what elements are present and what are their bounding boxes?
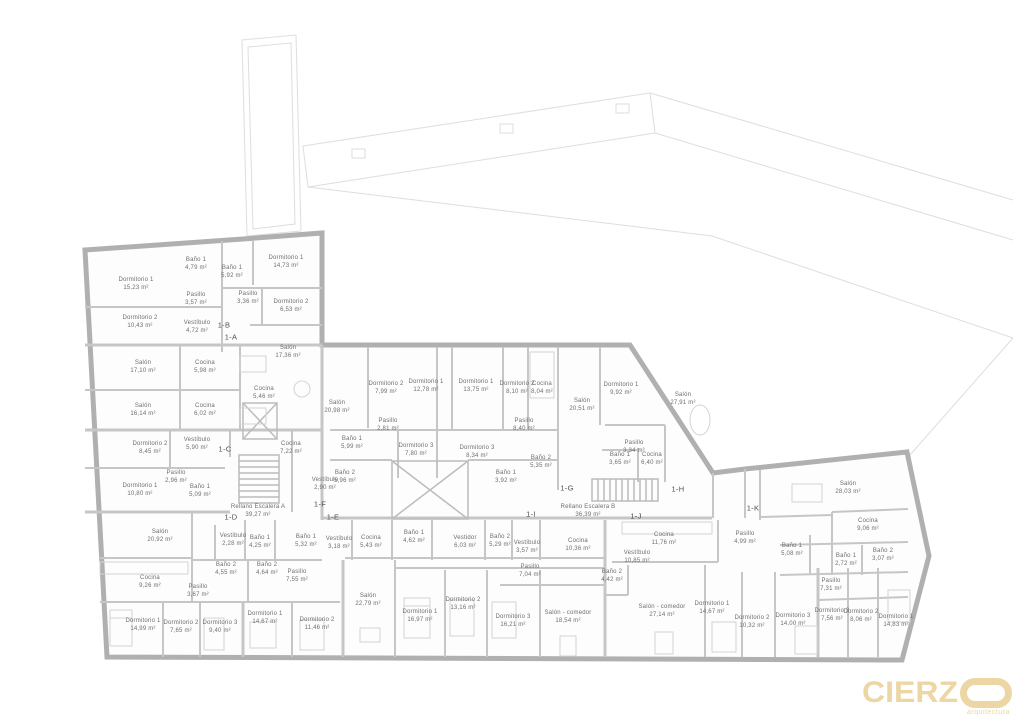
- logo-cierzo: CIERZ arquitectura: [862, 678, 1012, 716]
- room-label: Dormitorio 210,43 m²: [122, 314, 157, 330]
- room-label: Dormitorio 37,80 m²: [398, 442, 433, 458]
- room-label: Dormitorio 27,99 m²: [368, 380, 403, 396]
- room-label: Salón27,91 m²: [670, 391, 695, 407]
- room-label: Baño 13,92 m²: [495, 469, 517, 485]
- room-label: Pasillo3,57 m²: [185, 291, 207, 307]
- room-label: Baño 24,42 m²: [601, 568, 623, 584]
- logo-o-mark-icon: [960, 678, 1012, 708]
- room-label: Dormitorio 26,53 m²: [273, 298, 308, 314]
- room-label: Baño 14,25 m²: [249, 534, 271, 550]
- room-label: Dormitorio 114,73 m²: [268, 254, 303, 270]
- room-label: Dormitorio 28,45 m²: [132, 440, 167, 456]
- room-label: Salón20,51 m²: [569, 397, 594, 413]
- room-label: Pasillo3,67 m²: [187, 583, 209, 599]
- floor-plan-canvas: Baño 14,79 m²Dormitorio 115,23 m²Dormito…: [0, 0, 1024, 724]
- room-label: Vestíbulo2,28 m²: [220, 532, 247, 548]
- room-label: Cocina5,46 m²: [253, 385, 275, 401]
- room-label: Baño 14,62 m²: [403, 529, 425, 545]
- room-label: Dormitorio 210,32 m²: [734, 614, 769, 630]
- room-label: Dormitorio 27,65 m²: [163, 619, 198, 635]
- unit-code-label: 1-E: [327, 513, 340, 522]
- unit-code-label: 1-G: [560, 484, 573, 493]
- room-label: Cocina7,22 m²: [280, 440, 302, 456]
- unit-code-label: 1-B: [218, 321, 231, 330]
- room-label: Vestíbulo4,72 m²: [184, 319, 211, 335]
- room-label: Dormitorio 314,00 m²: [775, 612, 810, 628]
- room-label: Salón17,10 m²: [130, 359, 155, 375]
- room-label: Baño 24,55 m²: [215, 561, 237, 577]
- room-labels-layer: Baño 14,79 m²Dormitorio 115,23 m²Dormito…: [0, 0, 1024, 724]
- room-label: Salón17,36 m²: [275, 344, 300, 360]
- room-label: Dormitorio 28,10 m²: [499, 380, 534, 396]
- room-label: Pasillo3,36 m²: [237, 290, 259, 306]
- room-label: Dormitorio 38,34 m²: [459, 444, 494, 460]
- room-label: Cocina5,43 m²: [360, 534, 382, 550]
- room-label: Baño 15,99 m²: [341, 435, 363, 451]
- room-label: Baño 13,65 m²: [609, 451, 631, 467]
- room-label: Dormitorio 28,06 m²: [843, 608, 878, 624]
- room-label: Pasillo8,40 m²: [513, 417, 535, 433]
- room-label: Baño 25,35 m²: [530, 454, 552, 470]
- room-label: Pasillo2,96 m²: [165, 469, 187, 485]
- room-label: Salón20,98 m²: [324, 399, 349, 415]
- room-label: Pasillo7,04 m²: [519, 563, 541, 579]
- room-label: Dormitorio 211,46 m²: [299, 616, 334, 632]
- room-label: Vestíbulo10,85 m²: [624, 549, 651, 565]
- logo-brand-text: CIERZ: [862, 680, 958, 705]
- room-label: Baño 24,64 m²: [256, 561, 278, 577]
- room-label: Baño 14,79 m²: [185, 256, 207, 272]
- room-label: Vestíbulo3,57 m²: [514, 539, 541, 555]
- room-label: Rellano Escalera B36,39 m²: [561, 503, 616, 519]
- room-label: Baño 23,07 m²: [872, 547, 894, 563]
- room-label: Dormitorio 115,23 m²: [118, 276, 153, 292]
- room-label: Cocina5,98 m²: [194, 359, 216, 375]
- room-label: Dormitorio 213,16 m²: [445, 596, 480, 612]
- room-label: Salón22,79 m²: [355, 592, 380, 608]
- room-label: Baño 15,09 m²: [189, 483, 211, 499]
- room-label: Baño 15,92 m²: [221, 264, 243, 280]
- room-label: Cocina8,04 m²: [531, 380, 553, 396]
- room-label: Vestíbulo5,90 m²: [184, 436, 211, 452]
- room-label: Pasillo2,81 m²: [377, 417, 399, 433]
- room-label: Dormitorio 114,83 m²: [878, 613, 913, 629]
- room-label: Dormitorio 114,99 m²: [125, 617, 160, 633]
- room-label: Vestíbulo3,18 m²: [326, 535, 353, 551]
- room-label: Baño 25,29 m²: [489, 533, 511, 549]
- unit-code-label: 1-A: [225, 333, 238, 342]
- room-label: Baño 15,32 m²: [295, 533, 317, 549]
- room-label: Dormitorio 114,67 m²: [694, 600, 729, 616]
- unit-code-label: 1-I: [526, 510, 536, 519]
- room-label: Cocina9,06 m²: [857, 517, 879, 533]
- logo-row: CIERZ: [862, 678, 1012, 708]
- room-label: Pasillo4,99 m²: [734, 530, 756, 546]
- unit-code-label: 1-K: [747, 504, 760, 513]
- unit-code-label: 1-C: [219, 445, 232, 454]
- room-label: Dormitorio 112,78 m²: [408, 378, 443, 394]
- room-label: Dormitorio 113,75 m²: [458, 378, 493, 394]
- room-label: Baño 25,96 m²: [334, 469, 356, 485]
- unit-code-label: 1-F: [314, 500, 326, 509]
- room-label: Cocina10,36 m²: [565, 537, 590, 553]
- room-label: Cocina6,40 m²: [641, 451, 663, 467]
- room-label: Baño 12,72 m²: [835, 552, 857, 568]
- room-label: Salón16,14 m²: [130, 402, 155, 418]
- unit-code-label: 1-H: [672, 485, 685, 494]
- unit-code-label: 1-J: [630, 512, 641, 521]
- room-label: Salón - comedor18,54 m²: [544, 609, 591, 625]
- room-label: Pasillo7,31 m²: [820, 577, 842, 593]
- room-label: Vestidor6,03 m²: [453, 534, 476, 550]
- room-label: Salón28,03 m²: [835, 480, 860, 496]
- room-label: Dormitorio 110,80 m²: [122, 482, 157, 498]
- room-label: Dormitorio 116,97 m²: [402, 608, 437, 624]
- room-label: Dormitorio 316,21 m²: [495, 613, 530, 629]
- logo-tagline: arquitectura: [967, 709, 1010, 716]
- room-label: Dormitorio 19,92 m²: [603, 381, 638, 397]
- room-label: Cocina9,26 m²: [139, 574, 161, 590]
- room-label: Cocina11,76 m²: [652, 531, 677, 547]
- room-label: Salón20,92 m²: [147, 528, 172, 544]
- room-label: Pasillo7,55 m²: [286, 568, 308, 584]
- room-label: Salón - comedor27,14 m²: [638, 603, 685, 619]
- room-label: Cocina6,02 m²: [194, 402, 216, 418]
- unit-code-label: 1-D: [225, 513, 238, 522]
- room-label: Dormitorio 39,40 m²: [202, 619, 237, 635]
- room-label: Baño 15,08 m²: [781, 542, 803, 558]
- room-label: Dormitorio 114,67 m²: [247, 610, 282, 626]
- room-label: Rellano Escalera A39,27 m²: [231, 503, 285, 519]
